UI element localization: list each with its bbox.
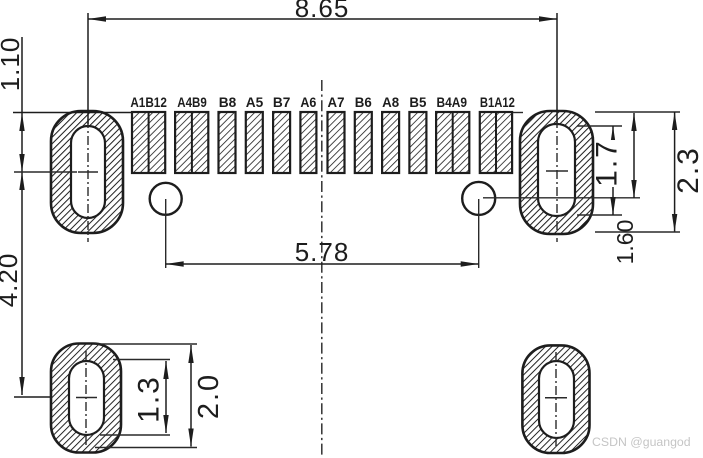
svg-text:A8: A8 [382,94,399,110]
svg-text:2.0: 2.0 [193,373,225,419]
svg-text:1.7: 1.7 [591,139,624,187]
svg-text:B8: B8 [219,94,237,110]
svg-text:B4A9: B4A9 [437,94,468,110]
svg-text:B1A12: B1A12 [480,94,515,110]
svg-text:5.78: 5.78 [295,237,350,267]
svg-text:1.60: 1.60 [612,220,638,265]
svg-text:CSDN @guangod: CSDN @guangod [592,435,691,449]
svg-text:B6: B6 [355,94,372,110]
svg-text:2.3: 2.3 [672,146,703,194]
svg-text:A7: A7 [328,94,345,110]
svg-text:1.10: 1.10 [0,37,25,92]
svg-text:B5: B5 [409,94,426,110]
svg-text:A1B12: A1B12 [130,94,167,110]
svg-text:4.20: 4.20 [0,253,23,308]
svg-text:A4B9: A4B9 [177,94,207,110]
svg-text:A6: A6 [300,94,316,110]
svg-text:8.65: 8.65 [295,0,350,23]
svg-text:1.3: 1.3 [133,375,166,423]
svg-text:A5: A5 [246,94,264,110]
svg-text:B7: B7 [273,94,291,110]
